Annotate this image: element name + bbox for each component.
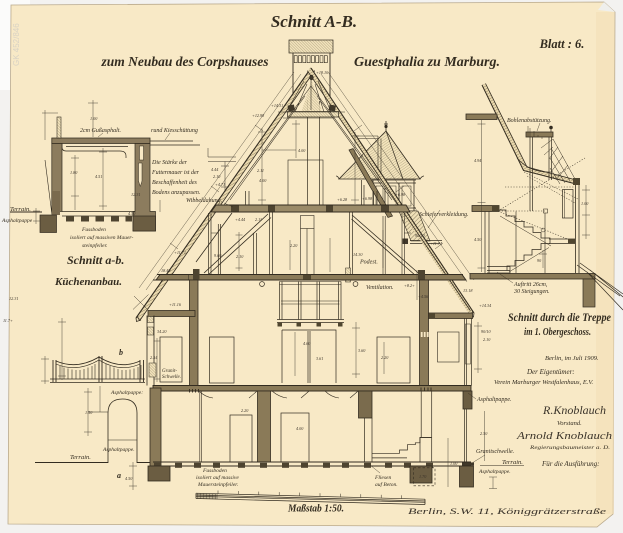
- svg-text:9.60: 9.60: [214, 253, 222, 258]
- svg-text:1.00: 1.00: [581, 201, 589, 206]
- svg-text:2.54: 2.54: [150, 355, 157, 360]
- svg-text:Granitschwelle.: Granitschwelle.: [476, 449, 514, 455]
- svg-text:1.00: 1.00: [450, 461, 458, 466]
- svg-text:+4.71: +4.71: [215, 182, 225, 187]
- svg-text:Guestphalia zu Marburg.: Guestphalia zu Marburg.: [354, 54, 500, 69]
- svg-text:Asphaltpappe.: Asphaltpappe.: [102, 447, 135, 453]
- svg-text:Beschaffenheit des: Beschaffenheit des: [152, 179, 197, 186]
- svg-text:+11.16: +11.16: [169, 302, 182, 307]
- svg-text:2.11: 2.11: [257, 168, 264, 173]
- svg-text:4.00: 4.00: [298, 148, 306, 153]
- svg-text:1.50: 1.50: [85, 410, 93, 415]
- svg-text:2.10: 2.10: [483, 337, 491, 342]
- svg-text:4.51: 4.51: [95, 174, 102, 179]
- svg-text:Der Eigentümer:: Der Eigentümer:: [526, 368, 575, 376]
- svg-text:4.44: 4.44: [211, 167, 218, 172]
- svg-text:+11.74: +11.74: [430, 241, 442, 246]
- svg-text:Berlin, im Juli 1909.: Berlin, im Juli 1909.: [545, 355, 599, 362]
- svg-text:Berlin, S.W. 11, Königgrätzers: Berlin, S.W. 11, Königgrätzerstraße: [408, 506, 606, 516]
- svg-text:+14.31: +14.31: [271, 103, 283, 108]
- svg-text:4.60: 4.60: [303, 341, 311, 346]
- svg-text:+14.34: +14.34: [479, 303, 491, 308]
- svg-text:a: a: [117, 471, 121, 480]
- svg-text:12.31: 12.31: [9, 296, 18, 301]
- svg-text:Asphaltpappe:: Asphaltpappe:: [110, 390, 143, 396]
- svg-text:2.50: 2.50: [480, 431, 488, 436]
- svg-text:2.11: 2.11: [255, 217, 262, 222]
- svg-text:Asphaltpappe: Asphaltpappe: [1, 218, 33, 224]
- svg-text:Terrain.: Terrain.: [502, 459, 523, 466]
- svg-text:+6.98: +6.98: [395, 192, 406, 197]
- svg-text:Wibbeldahung.: Wibbeldahung.: [186, 198, 222, 204]
- svg-text:4.94: 4.94: [474, 158, 481, 163]
- svg-text:b: b: [119, 348, 123, 357]
- svg-text:2.20: 2.20: [381, 355, 389, 360]
- svg-text:Asphaltpappe.: Asphaltpappe.: [476, 397, 512, 403]
- svg-text:Bohlenabstützung.: Bohlenabstützung.: [507, 118, 552, 124]
- svg-text:2.20: 2.20: [241, 408, 249, 413]
- svg-text:2cm Gußasphalt.: 2cm Gußasphalt.: [80, 127, 121, 134]
- svg-text:+11.71: +11.71: [174, 250, 186, 255]
- svg-text:1.00: 1.00: [90, 116, 98, 121]
- svg-text:Vorstand.: Vorstand.: [557, 420, 582, 427]
- svg-text:+4.44: +4.44: [235, 217, 245, 222]
- svg-text:30 Steigungen.: 30 Steigungen.: [513, 289, 550, 295]
- svg-text:90/10: 90/10: [415, 233, 425, 238]
- svg-text:Terrain.: Terrain.: [10, 206, 31, 213]
- svg-text:Schnitt a-b.: Schnitt a-b.: [67, 253, 124, 267]
- svg-text:2.10: 2.10: [236, 254, 244, 259]
- svg-text:4.50: 4.50: [474, 237, 482, 242]
- svg-text:90/10: 90/10: [481, 329, 491, 334]
- svg-text:GK 452/846: GK 452/846: [12, 23, 21, 66]
- svg-text:Schnitt durch die Treppe: Schnitt durch die Treppe: [508, 312, 611, 324]
- svg-text:+4.56: +4.56: [418, 294, 429, 299]
- svg-text:Verein Marburger Westfalenhaus: Verein Marburger Westfalenhaus, E.V.: [494, 379, 594, 386]
- svg-text:rund Kiesschüttung: rund Kiesschüttung: [151, 128, 198, 134]
- svg-text:Futtermauer ist der: Futtermauer ist der: [151, 170, 200, 176]
- svg-text:Granit-: Granit-: [162, 369, 177, 374]
- svg-text:+6.28: +6.28: [337, 197, 348, 202]
- svg-text:+8.2+: +8.2+: [404, 283, 415, 288]
- svg-text:Arnold Knoblauch: Arnold Knoblauch: [516, 430, 613, 442]
- svg-text:Asphaltpappe.: Asphaltpappe.: [478, 469, 511, 475]
- svg-text:1.80: 1.80: [70, 170, 78, 175]
- svg-text:Schieferverkleidung.: Schieferverkleidung.: [419, 211, 468, 218]
- svg-text:Terrain.: Terrain.: [70, 454, 91, 461]
- svg-text:2.20: 2.20: [290, 243, 298, 248]
- svg-text:Auftritt 26cm,: Auftritt 26cm,: [513, 281, 548, 288]
- svg-text:Fussboden: Fussboden: [202, 468, 227, 474]
- svg-text:Küchenanbau.: Küchenanbau.: [54, 276, 122, 288]
- svg-text:im 1. Obergeschoss.: im 1. Obergeschoss.: [524, 327, 591, 338]
- svg-text:R.Knoblauch: R.Knoblauch: [542, 403, 606, 417]
- svg-text:4.50: 4.50: [128, 211, 136, 216]
- svg-text:isoliert auf massiven Mauer-: isoliert auf massiven Mauer-: [70, 234, 133, 241]
- svg-text:1.70: 1.70: [419, 474, 427, 479]
- svg-text:+12.98: +12.98: [252, 113, 265, 118]
- svg-text:+18.10: +18.10: [316, 70, 329, 75]
- svg-text:34.20: 34.20: [157, 329, 167, 334]
- svg-text:isoliert auf massive: isoliert auf massive: [196, 474, 239, 481]
- svg-text:Schwelle.: Schwelle.: [162, 375, 181, 380]
- svg-text:Fussboden: Fussboden: [81, 227, 106, 233]
- svg-text:Für die Ausführung:: Für die Ausführung:: [541, 460, 599, 468]
- svg-text:4.00: 4.00: [296, 426, 304, 431]
- svg-text:Regierungsbaumeister a. D.: Regierungsbaumeister a. D.: [529, 445, 610, 451]
- svg-text:Podest.: Podest.: [359, 260, 378, 266]
- svg-text:Bodens anzupassen.: Bodens anzupassen.: [152, 190, 200, 196]
- svg-text:Die Stärke der: Die Stärke der: [151, 160, 188, 166]
- svg-text:auf Beton.: auf Beton.: [375, 481, 398, 488]
- svg-text:14.30: 14.30: [353, 252, 363, 257]
- svg-text:3.60: 3.60: [358, 348, 366, 353]
- svg-text:Fliesen: Fliesen: [374, 475, 391, 481]
- svg-text:+6.98: +6.98: [362, 196, 373, 201]
- svg-text:18.40: 18.40: [161, 268, 171, 273]
- svg-text:zum Neubau des Corpshauses: zum Neubau des Corpshauses: [101, 54, 269, 69]
- svg-text:Blatt : 6.: Blatt : 6.: [539, 37, 585, 51]
- svg-text:13.18: 13.18: [463, 288, 473, 293]
- svg-text:11.7+: 11.7+: [3, 318, 13, 323]
- svg-text:2.10: 2.10: [213, 174, 221, 179]
- svg-text:Maßstab 1:50.: Maßstab 1:50.: [287, 503, 344, 515]
- svg-text:3.61: 3.61: [316, 356, 323, 361]
- svg-text:12.31: 12.31: [131, 192, 140, 197]
- svg-text:Schnitt A-B.: Schnitt A-B.: [271, 12, 357, 31]
- svg-text:4.00: 4.00: [259, 178, 267, 183]
- svg-text:Mauersteinpfeiler.: Mauersteinpfeiler.: [197, 481, 238, 488]
- svg-text:steinpfeiler.: steinpfeiler.: [82, 242, 108, 249]
- svg-text:Ventilation.: Ventilation.: [366, 285, 394, 291]
- svg-text:4.50: 4.50: [125, 476, 133, 481]
